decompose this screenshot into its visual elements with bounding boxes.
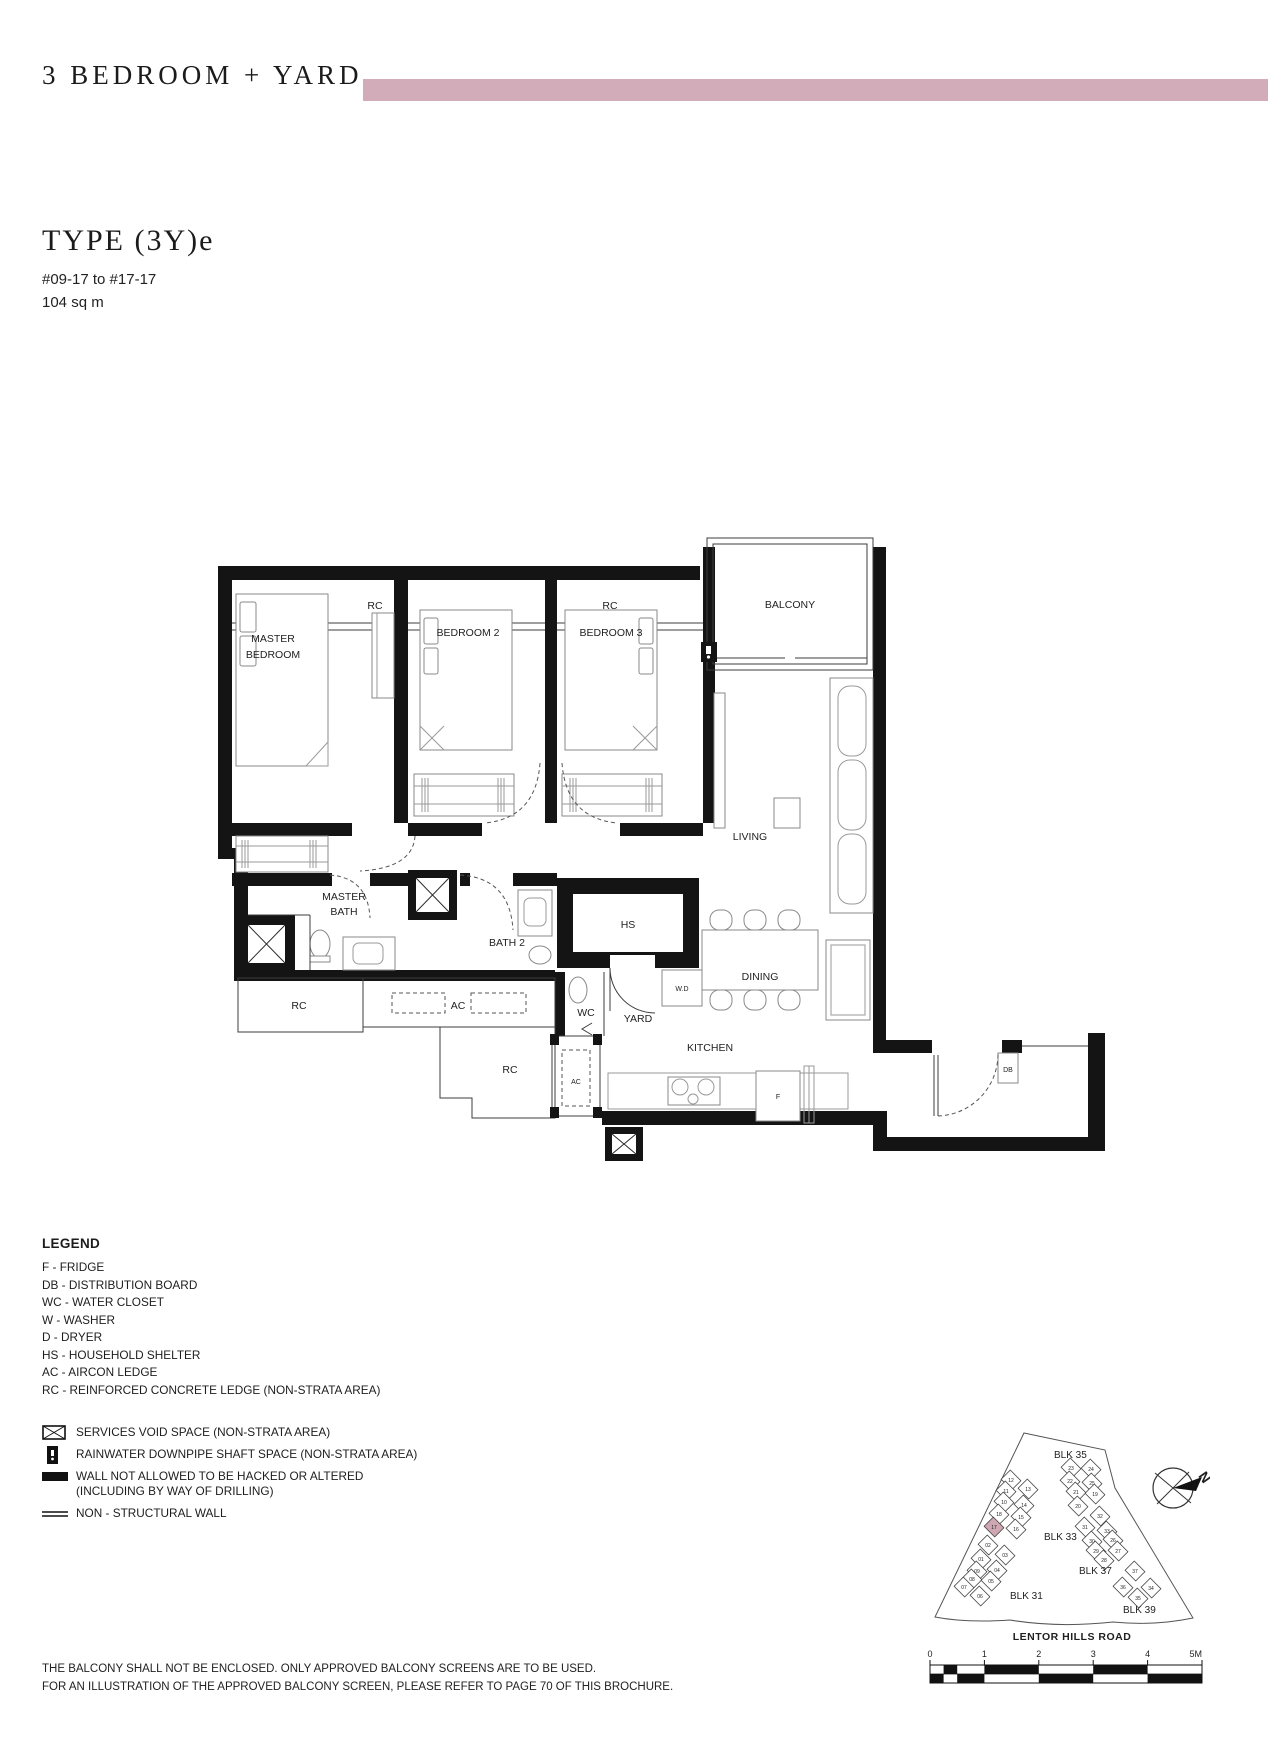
wall [545,580,557,823]
washer-dryer-label: W.D [675,986,688,993]
master-bedroom-label2: BEDROOM [246,649,300,661]
svg-text:07: 07 [961,1585,967,1591]
wc-fixture [569,977,587,1003]
hacking-wall-icon [42,1469,76,1484]
wall [873,547,886,1042]
svg-text:24: 24 [1088,1467,1094,1473]
legend-symbol-label: NON - STRUCTURAL WALL [76,1506,227,1521]
scale-label: 2 [1036,1649,1041,1659]
page-title: 3 BEDROOM + YARD [42,60,363,91]
svg-text:31: 31 [1082,1525,1088,1531]
rc-ledge-label-left: RC [367,600,383,612]
svg-text:18: 18 [996,1512,1002,1518]
unit-area: 104 sq m [42,291,156,314]
wall [1002,1040,1022,1053]
sofa [830,678,873,913]
legend-abbr: DB - DISTRIBUTION BOARD [42,1277,602,1295]
rc-step-outline [440,1027,555,1118]
svg-text:29: 29 [1093,1549,1099,1555]
legend-symbol-label: WALL NOT ALLOWED TO BE HACKED OR ALTERED… [76,1469,363,1499]
fridge-label: F [776,1094,780,1101]
coffee-table [774,798,800,828]
wall [602,1111,873,1125]
svg-text:10: 10 [1001,1500,1007,1506]
site-unit: 36 [1113,1577,1133,1597]
svg-text:17: 17 [991,1525,997,1531]
wall [218,566,232,848]
legend-title: LEGEND [42,1236,602,1251]
scale-label: 3 [1091,1649,1096,1659]
master-bath-vanity [343,937,395,970]
unit-meta: #09-17 to #17-17 104 sq m [42,268,156,314]
site-unit: 37 [1125,1561,1145,1581]
non-structural-wall-icon [42,1506,76,1521]
svg-text:08: 08 [969,1577,975,1583]
legend-symbol-label: SERVICES VOID SPACE (NON-STRATA AREA) [76,1425,330,1440]
bedroom2-wardrobe [414,774,514,816]
site-unit: 13 [1018,1479,1038,1499]
bath2-vanity [518,890,552,936]
svg-text:35: 35 [1135,1596,1141,1602]
bedroom2-label: BEDROOM 2 [436,627,499,639]
brochure-page: 3 BEDROOM + YARD TYPE (3Y)e #09-17 to #1… [0,0,1272,1745]
svg-text:27: 27 [1115,1549,1121,1555]
balcony-label: BALCONY [765,599,815,611]
yard-label: YARD [624,1013,653,1025]
svg-text:14: 14 [1021,1503,1027,1509]
legend-abbr: WC - WATER CLOSET [42,1294,602,1312]
svg-text:13: 13 [1025,1487,1031,1493]
rc-ledge-label: RC [291,1000,307,1012]
site-block-label: BLK 37 [1079,1566,1112,1577]
legend-abbr: F - FRIDGE [42,1259,602,1277]
services-void-icon [42,1425,76,1440]
legend-abbr: W - WASHER [42,1312,602,1330]
floor-plan: RC RC BALCONY MASTER BEDROOM BEDROOM 2 [210,478,1110,1178]
site-plan: 1211131014181517160201030904080507062324… [830,1280,1210,1700]
svg-text:19: 19 [1092,1492,1098,1498]
site-unit: 20 [1068,1496,1088,1516]
scale-label: 1 [982,1649,987,1659]
footnotes: THE BALCONY SHALL NOT BE ENCLOSED. ONLY … [42,1660,673,1696]
site-block-label: BLK 39 [1123,1605,1156,1616]
north-compass-icon: N [1153,1468,1210,1508]
unit-type-title: TYPE (3Y)e [42,224,214,258]
svg-text:12: 12 [1008,1478,1014,1484]
legend-abbr: AC - AIRCON LEDGE [42,1364,602,1382]
scale-label: 0 [927,1649,932,1659]
wall [408,823,482,836]
wall [232,873,332,886]
svg-text:16: 16 [1013,1527,1019,1533]
sideboard [826,940,870,1020]
bath2-label: BATH 2 [489,937,525,949]
rainwater-downpipe-icon [42,1447,76,1462]
ac-ledge-label: AC [451,1000,466,1012]
wall [513,873,557,886]
wall [370,873,408,886]
wall [1088,1033,1105,1151]
svg-text:06: 06 [977,1594,983,1600]
title-accent-bar [363,79,1268,101]
kitchen-counter [608,1073,848,1109]
svg-text:34: 34 [1148,1586,1154,1592]
wall [873,1137,1105,1151]
ac-shaft-label: AC [571,1079,581,1086]
master-bath-label: MASTER [322,891,366,903]
unit-range: #09-17 to #17-17 [42,268,156,291]
kitchen-label: KITCHEN [687,1042,733,1054]
db-label: DB [1003,1067,1013,1074]
living-label: LIVING [733,831,767,843]
svg-text:03: 03 [1002,1553,1008,1559]
wall [232,823,352,836]
tv-console [714,693,725,828]
master-dresser [372,613,394,698]
svg-text:36: 36 [1120,1585,1126,1591]
scale-label: 5M [1189,1649,1202,1659]
hs-label: HS [621,919,636,931]
wall [620,823,703,836]
svg-text:02: 02 [985,1543,991,1549]
svg-text:04: 04 [994,1568,1000,1574]
rc-step-label: RC [502,1064,518,1076]
svg-text:21: 21 [1073,1490,1079,1496]
svg-text:05: 05 [988,1579,994,1585]
bath2-wc [529,946,551,964]
bedroom3-wardrobe [562,774,662,816]
legend: LEGEND F - FRIDGE DB - DISTRIBUTION BOAR… [42,1236,602,1521]
svg-text:01: 01 [978,1557,984,1563]
site-block-label: BLK 31 [1010,1591,1043,1602]
scale-label: 4 [1145,1649,1150,1659]
scale-bar: 012345M [927,1649,1202,1683]
site-block-label: BLK 33 [1044,1532,1077,1543]
wc-label: WC [577,1007,595,1019]
legend-symbol-label: RAINWATER DOWNPIPE SHAFT SPACE (NON-STRA… [76,1447,417,1462]
wall [394,580,408,823]
svg-text:20: 20 [1075,1504,1081,1510]
legend-abbr: D - DRYER [42,1329,602,1347]
wall [218,566,700,580]
master-wardrobe [236,836,328,872]
ac-shaft [552,1036,600,1116]
road-label: LENTOR HILLS ROAD [1013,1631,1132,1643]
master-bath-wc [310,930,330,958]
legend-abbr: HS - HOUSEHOLD SHELTER [42,1347,602,1365]
dining-label: DINING [742,971,779,983]
svg-text:32: 32 [1097,1514,1103,1520]
site-block-label: BLK 35 [1054,1450,1087,1461]
svg-text:37: 37 [1132,1569,1138,1575]
footnote-line: FOR AN ILLUSTRATION OF THE APPROVED BALC… [42,1678,673,1696]
wall [873,1040,932,1053]
master-bedroom-label: MASTER [251,633,295,645]
master-bath-label2: BATH [330,906,357,918]
wall [555,972,565,1036]
svg-text:28: 28 [1101,1558,1107,1564]
legend-abbr: RC - REINFORCED CONCRETE LEDGE (NON-STRA… [42,1382,602,1400]
svg-text:15: 15 [1018,1515,1024,1521]
footnote-line: THE BALCONY SHALL NOT BE ENCLOSED. ONLY … [42,1660,673,1678]
bedroom3-label: BEDROOM 3 [579,627,642,639]
svg-text:22: 22 [1067,1479,1073,1485]
